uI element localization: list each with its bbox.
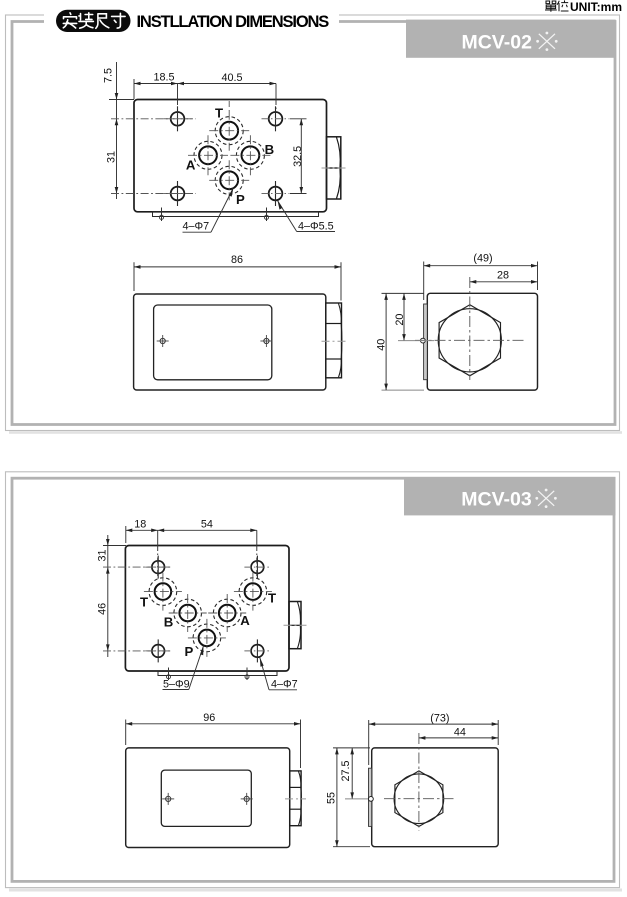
svg-text:31: 31 [96,549,108,561]
svg-text:B: B [265,142,275,157]
svg-text:32.5: 32.5 [292,146,304,167]
svg-text:P: P [236,192,245,207]
svg-text:(73): (73) [430,712,449,724]
svg-text:4–Φ7: 4–Φ7 [183,221,210,233]
svg-text:86: 86 [231,254,243,266]
svg-text:T: T [215,106,223,121]
svg-text:A: A [240,613,250,628]
svg-text:4–Φ7: 4–Φ7 [271,679,298,691]
svg-text:T: T [140,595,148,610]
svg-text:7.5: 7.5 [102,68,114,83]
svg-text:18.5: 18.5 [153,72,174,84]
svg-text:18: 18 [134,518,146,530]
svg-text:5–Φ9: 5–Φ9 [163,678,190,690]
svg-text:46: 46 [96,603,108,615]
svg-text:28: 28 [497,269,509,281]
svg-text:MCV-03: MCV-03 [461,488,532,510]
svg-text:T: T [268,591,276,606]
svg-text:27.5: 27.5 [340,760,352,781]
svg-text:MCV-02: MCV-02 [461,31,532,53]
svg-text:20: 20 [394,314,406,326]
svg-text:55: 55 [326,792,338,804]
svg-text:44: 44 [454,726,466,738]
svg-text:A: A [186,157,196,172]
svg-text:4–Φ5.5: 4–Φ5.5 [298,221,334,233]
svg-text:B: B [164,615,174,630]
svg-text:INSTLLATION DIMENSIONS: INSTLLATION DIMENSIONS [137,13,330,31]
svg-text:40: 40 [375,339,387,351]
svg-text:40.5: 40.5 [221,72,242,84]
svg-text:31: 31 [106,151,118,163]
svg-text:54: 54 [201,518,213,530]
svg-text:96: 96 [203,712,215,724]
svg-text:(49): (49) [473,252,492,264]
svg-text:UNIT:mm: UNIT:mm [570,0,622,14]
svg-text:P: P [185,644,194,659]
